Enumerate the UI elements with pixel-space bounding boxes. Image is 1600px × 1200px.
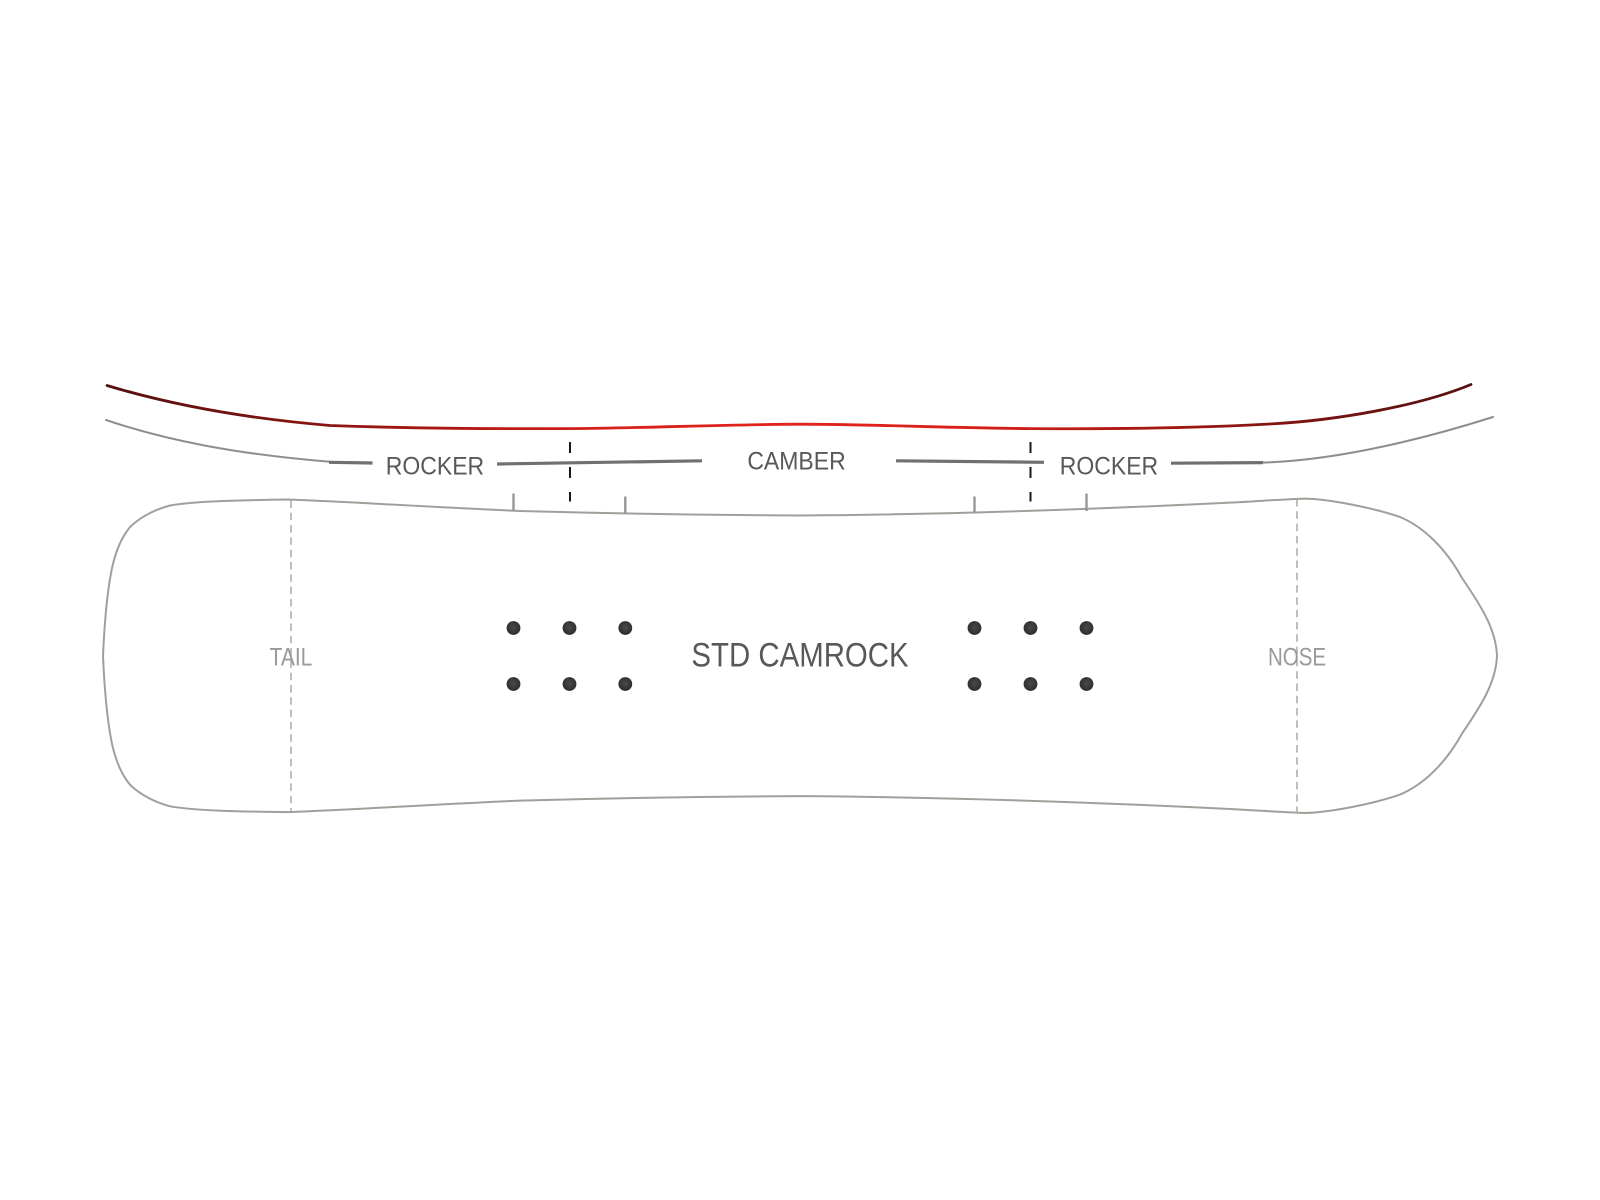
svg-text:NOSE: NOSE bbox=[1268, 643, 1326, 671]
svg-text:ROCKER: ROCKER bbox=[386, 453, 484, 481]
svg-text:STD CAMROCK: STD CAMROCK bbox=[691, 635, 908, 674]
svg-text:CAMBER: CAMBER bbox=[747, 448, 845, 476]
svg-text:TAIL: TAIL bbox=[270, 643, 313, 671]
svg-text:ROCKER: ROCKER bbox=[1060, 453, 1158, 481]
